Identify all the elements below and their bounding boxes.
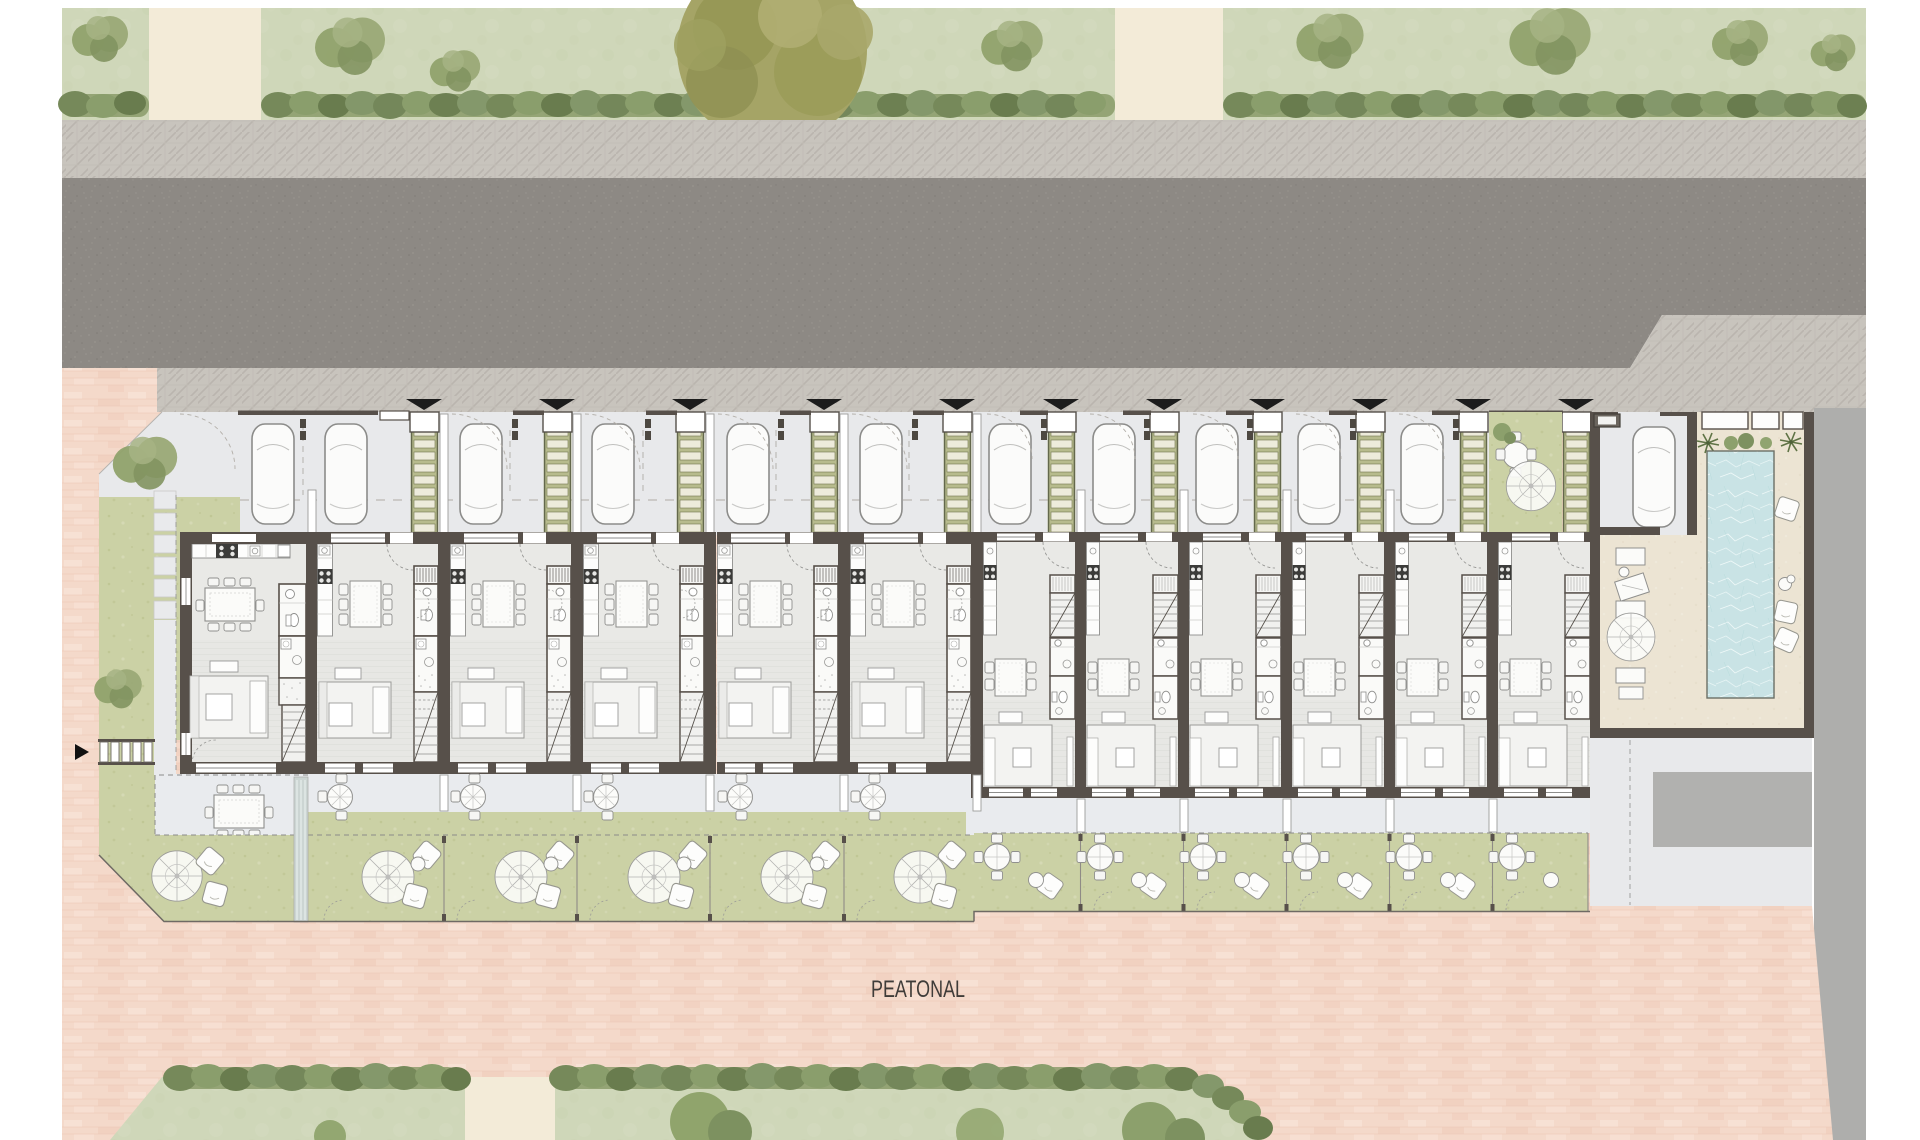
svg-text:PEATONAL: PEATONAL [871,976,965,1003]
